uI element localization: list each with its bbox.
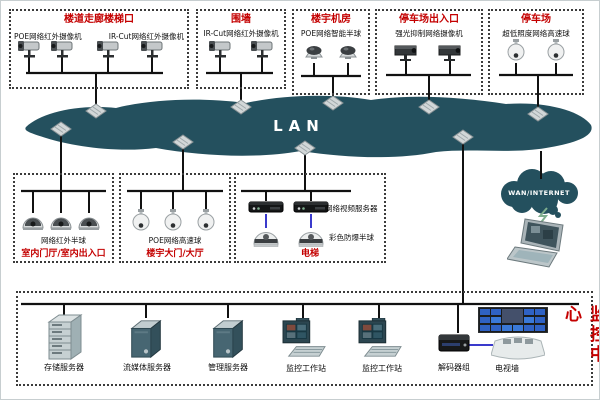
speed-dome-camera-icon <box>506 39 526 63</box>
lan-cloud-label: LAN <box>261 117 337 135</box>
group-title: 室内门厅/室内出入口 <box>15 246 112 259</box>
camera-type-label: 超低照度网络高速球 <box>490 30 582 38</box>
device-label: 解码器组 <box>429 362 479 373</box>
monitoring-center-title: 监控中心 <box>559 305 600 383</box>
camera-type-label: POE网络智能半球 <box>294 30 368 38</box>
video-server-icon <box>293 200 329 214</box>
console-desk-icon <box>491 333 545 363</box>
group-parking-lot: 停车场 超低照度网络高速球 <box>488 9 584 95</box>
camera-type-label: IR-Cut网络红外摄像机 <box>198 30 284 38</box>
bullet-camera-icon <box>49 39 75 59</box>
ir-dome-camera-icon <box>49 213 73 233</box>
bullet-camera-icon <box>249 39 275 59</box>
camera-type-label: 彩色防爆半球 <box>329 232 385 243</box>
network-switch-icon <box>452 129 474 145</box>
speed-dome-camera-icon <box>131 209 151 233</box>
smart-dome-camera-icon <box>302 44 326 64</box>
box-camera-icon <box>436 44 464 62</box>
device-label: 监控工作站 <box>352 363 412 374</box>
network-switch-icon <box>85 103 107 119</box>
group-title: 楼宇大门/大厅 <box>121 246 229 259</box>
bullet-camera-icon <box>95 39 121 59</box>
device-label: 流媒体服务器 <box>112 362 182 373</box>
group-title: 停车场出入口 <box>377 14 481 26</box>
device-type-label: 网络视频服务器 <box>325 203 385 214</box>
group-title: 楼道走廊楼梯口 <box>11 14 187 26</box>
explosion-proof-dome-icon <box>297 228 325 250</box>
group-title: 停车场 <box>490 14 582 26</box>
video-server-icon <box>248 200 284 214</box>
network-switch-icon <box>418 99 440 115</box>
speed-dome-camera-icon <box>546 39 566 63</box>
monitoring-workstation-icon <box>280 318 328 360</box>
tv-wall-icon <box>478 307 548 333</box>
network-topology-diagram: LAN WAN/INTERNET 楼道走廊楼梯口 POE网络红外摄像机 IR-C… <box>0 0 600 400</box>
group-title: 围墙 <box>198 14 284 26</box>
device-label: 存储服务器 <box>34 362 94 373</box>
speed-dome-camera-icon <box>196 209 216 233</box>
decoder-icon <box>438 331 470 354</box>
camera-type-label: POE网络高速球 <box>121 235 229 246</box>
monitoring-workstation-icon <box>356 318 404 360</box>
group-title: 楼宇机房 <box>294 14 368 26</box>
network-switch-icon <box>527 106 549 122</box>
bullet-camera-icon <box>16 39 42 59</box>
media-server-icon <box>127 317 165 359</box>
device-label: 电视墙 <box>482 363 532 374</box>
device-label: 监控工作站 <box>276 363 336 374</box>
explosion-proof-dome-icon <box>252 228 280 250</box>
camera-type-label: 网络红外半球 <box>15 235 112 246</box>
ir-dome-camera-icon <box>77 213 101 233</box>
speed-dome-camera-icon <box>163 209 183 233</box>
network-switch-icon <box>294 140 316 156</box>
storage-server-icon <box>45 312 85 362</box>
wan-cloud-label: WAN/INTERNET <box>500 189 578 197</box>
ir-dome-camera-icon <box>21 213 45 233</box>
bullet-camera-icon <box>207 39 233 59</box>
network-switch-icon <box>172 134 194 150</box>
management-server-icon <box>209 317 247 359</box>
network-switch-icon <box>50 121 72 137</box>
box-camera-icon <box>392 44 420 62</box>
smart-dome-camera-icon <box>336 44 360 64</box>
network-switch-icon <box>322 95 344 111</box>
device-label: 管理服务器 <box>198 362 258 373</box>
laptop-icon <box>507 217 571 269</box>
camera-type-label: 强光抑制网络摄像机 <box>377 30 481 38</box>
bullet-camera-icon <box>139 39 165 59</box>
network-switch-icon <box>230 99 252 115</box>
